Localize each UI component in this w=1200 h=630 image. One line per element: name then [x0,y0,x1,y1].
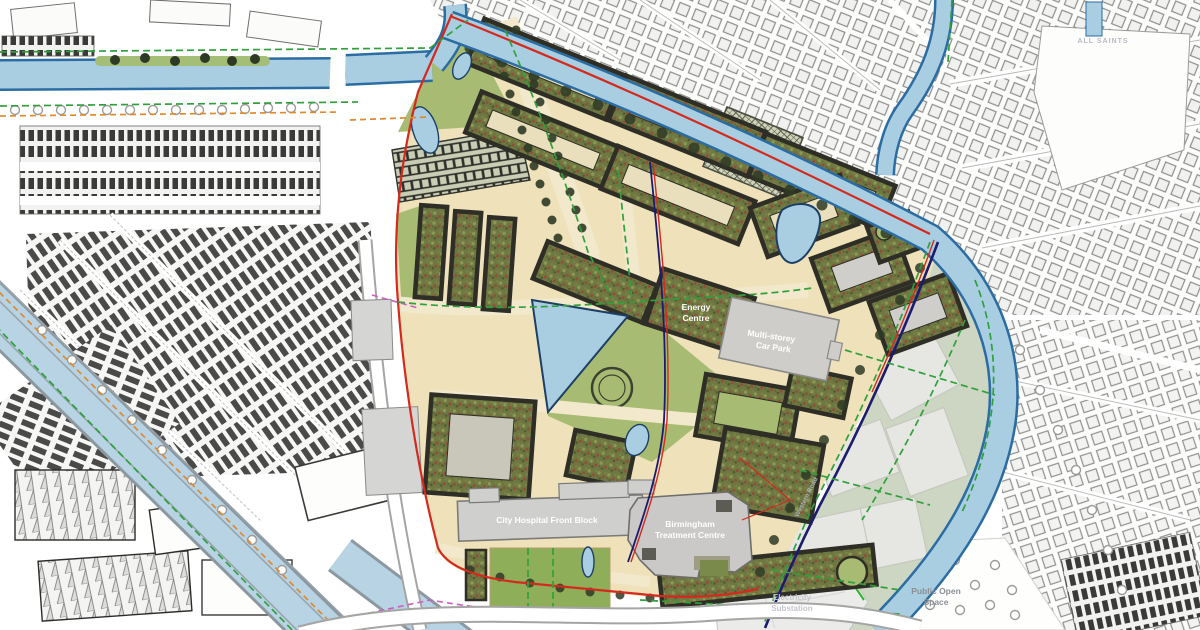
masterplan-canvas: Energy Centre Multi-storey Car Park City… [0,0,1200,630]
masterplan-map: Energy Centre Multi-storey Car Park City… [0,0,1200,630]
context-fabric-north-east [945,0,1200,315]
svg-text:Treatment Centre: Treatment Centre [655,530,725,540]
hospital-front-block-label: City Hospital Front Block [496,515,598,525]
substation-label: Electricity [773,593,812,602]
svg-text:Space: Space [923,597,948,607]
svg-text:Substation: Substation [771,604,812,613]
canal-park-strip [95,53,270,66]
public-open-space-label: Public Open [911,586,961,596]
energy-centre-label: Energy [682,302,711,312]
all-saints-label: ALL SAINTS [1077,38,1128,45]
canal-basin [1086,2,1102,36]
svg-text:Centre: Centre [683,313,710,323]
treatment-centre-label: Birmingham [665,519,715,529]
